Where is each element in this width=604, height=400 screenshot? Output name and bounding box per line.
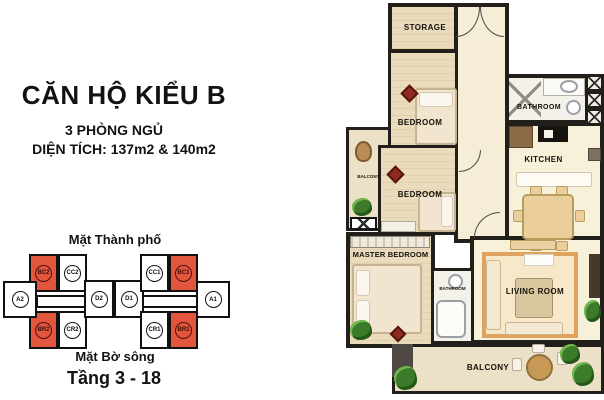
area-subtitle: DIỆN TÍCH: 137m2 & 140m2 — [8, 141, 240, 157]
kitchen-cabinet — [509, 126, 533, 148]
coffee-table — [515, 278, 553, 318]
label-balcony-bottom: BALCONY — [458, 364, 518, 373]
ac-unit-icon — [350, 217, 377, 230]
unit-cc2-label: CC2 — [64, 265, 81, 282]
unit-br1-label: BR1 — [175, 322, 192, 339]
basket — [355, 141, 372, 162]
closet — [350, 236, 430, 248]
unit-d2: D2 — [84, 280, 114, 318]
dining-table — [522, 194, 574, 240]
balcony-table — [526, 354, 553, 381]
kitchen-appliance — [588, 148, 601, 161]
plant — [560, 344, 580, 364]
unit-cc1: CC1 — [140, 254, 169, 292]
service-shaft-icon — [585, 108, 604, 126]
unit-cr1-label: CR1 — [146, 322, 163, 339]
room-entry-corridor — [454, 3, 509, 243]
bed-pillow — [441, 196, 453, 227]
shower — [509, 78, 541, 120]
label-kitchen: KITCHEN — [506, 156, 581, 165]
river-side-label: Mặt Bờ sông — [35, 349, 195, 364]
unit-cr1: CR1 — [140, 311, 169, 349]
unit-a1: A1 — [196, 281, 230, 318]
unit-cr2: CR2 — [58, 311, 87, 349]
unit-a2: A2 — [3, 281, 37, 318]
unit-br2-label: BR2 — [35, 322, 52, 339]
plant — [572, 362, 594, 386]
tv-console — [510, 240, 556, 250]
page-title: CĂN HỘ KIỂU B — [8, 80, 240, 111]
keyplan-connector-left — [36, 295, 88, 308]
city-side-label: Mặt Thành phố — [35, 232, 195, 247]
unit-cc2: CC2 — [58, 254, 87, 292]
unit-bc1-label: BC1 — [175, 265, 192, 282]
unit-a1-label: A1 — [205, 291, 222, 308]
unit-d2-label: D2 — [91, 291, 108, 308]
keyplan-connector-right — [140, 295, 198, 308]
bedrooms-subtitle: 3 PHÒNG NGỦ — [8, 122, 220, 138]
unit-bc2-label: BC2 — [35, 265, 52, 282]
label-bedroom-2: BEDROOM — [390, 191, 450, 200]
cabinet — [589, 254, 600, 298]
service-shaft-icon — [585, 74, 604, 92]
plant — [350, 320, 372, 340]
unit-d1-label: D1 — [121, 291, 138, 308]
unit-a2-label: A2 — [12, 291, 29, 308]
balcony-chair — [532, 344, 545, 353]
unit-bc1-highlighted: BC1 — [169, 254, 198, 292]
plant — [584, 300, 601, 322]
label-bathroom-1: BATHROOM — [508, 104, 570, 112]
unit-br1-highlighted: BR1 — [169, 311, 198, 349]
label-master-bedroom: MASTER BEDROOM — [347, 251, 434, 259]
floors-range-label: Tầng 3 - 18 — [28, 368, 200, 389]
label-bedroom-1: BEDROOM — [390, 119, 450, 128]
label-balcony-left: BALCONY — [346, 175, 391, 180]
dining-chair — [556, 241, 568, 251]
stove-burner — [544, 130, 553, 138]
plant — [352, 198, 372, 216]
label-storage: STORAGE — [395, 24, 455, 33]
bed-pillow — [356, 270, 370, 296]
kitchen-counter — [516, 172, 592, 187]
bathtub — [436, 300, 466, 338]
bed-pillow — [419, 92, 453, 107]
service-shaft-icon — [585, 91, 604, 109]
sofa — [505, 322, 563, 335]
dining-chair — [575, 210, 585, 222]
side-table — [524, 254, 554, 266]
unit-cr2-label: CR2 — [64, 322, 81, 339]
unit-cc1-label: CC1 — [146, 265, 163, 282]
sink-basin — [560, 80, 578, 93]
flyer-page: CĂN HỘ KIỂU B 3 PHÒNG NGỦ DIỆN TÍCH: 137… — [0, 0, 604, 400]
plant — [394, 366, 417, 390]
stove — [538, 126, 568, 142]
wardrobe — [381, 221, 416, 232]
label-bathroom-2: BATHROOM — [432, 287, 473, 292]
label-living-room: LIVING ROOM — [494, 288, 576, 297]
